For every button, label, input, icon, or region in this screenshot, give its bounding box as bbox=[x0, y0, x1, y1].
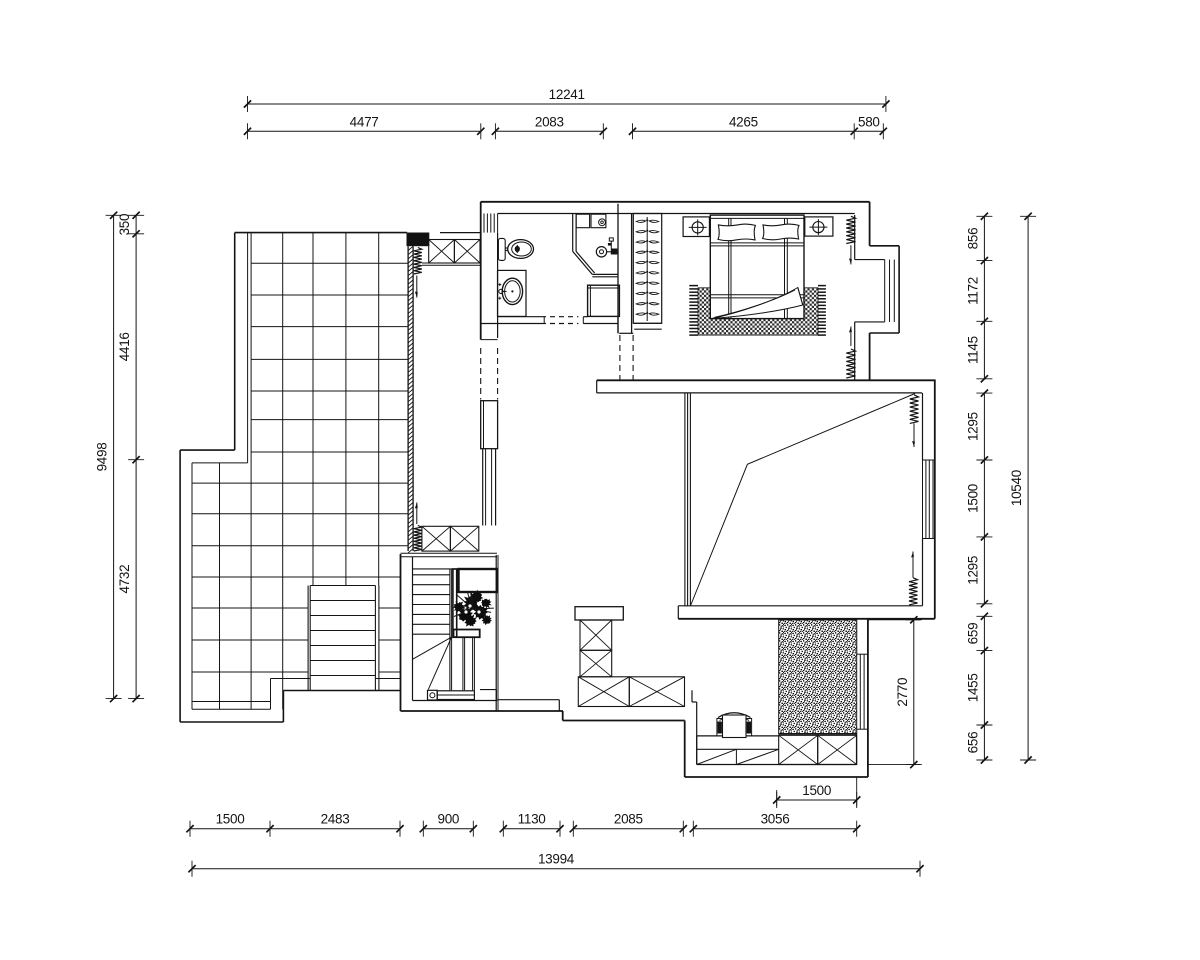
svg-text:900: 900 bbox=[437, 812, 459, 827]
svg-text:1145: 1145 bbox=[965, 336, 980, 364]
svg-text:2083: 2083 bbox=[535, 114, 564, 129]
svg-text:13994: 13994 bbox=[538, 852, 575, 867]
svg-text:856: 856 bbox=[965, 228, 980, 250]
svg-text:1455: 1455 bbox=[965, 673, 980, 702]
svg-text:1295: 1295 bbox=[965, 556, 980, 585]
svg-text:4477: 4477 bbox=[350, 114, 379, 129]
svg-text:1130: 1130 bbox=[518, 812, 546, 827]
svg-text:4265: 4265 bbox=[729, 114, 758, 129]
svg-text:4416: 4416 bbox=[117, 332, 132, 361]
svg-text:580: 580 bbox=[858, 114, 880, 129]
svg-text:1172: 1172 bbox=[965, 277, 980, 305]
svg-text:656: 656 bbox=[965, 732, 980, 754]
svg-text:350: 350 bbox=[117, 214, 132, 236]
svg-text:2483: 2483 bbox=[321, 812, 350, 827]
svg-text:1295: 1295 bbox=[965, 412, 980, 441]
svg-text:1500: 1500 bbox=[216, 812, 245, 827]
svg-text:2770: 2770 bbox=[895, 678, 910, 707]
svg-text:1500: 1500 bbox=[802, 783, 831, 798]
svg-text:2085: 2085 bbox=[614, 812, 643, 827]
svg-text:1500: 1500 bbox=[965, 484, 980, 513]
svg-text:9498: 9498 bbox=[95, 443, 110, 472]
svg-text:4732: 4732 bbox=[117, 565, 132, 594]
svg-text:12241: 12241 bbox=[549, 87, 585, 102]
svg-text:10540: 10540 bbox=[1009, 470, 1024, 506]
svg-text:659: 659 bbox=[965, 623, 980, 645]
svg-text:3056: 3056 bbox=[761, 812, 790, 827]
